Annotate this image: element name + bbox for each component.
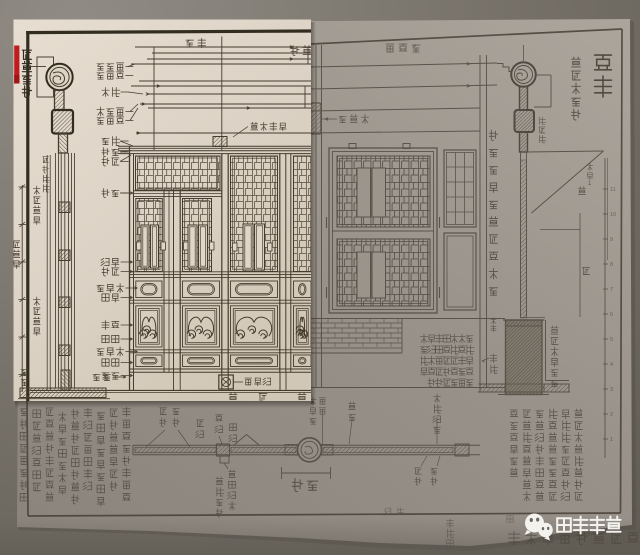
svg-text:3: 3 (610, 387, 613, 393)
svg-text:7: 7 (610, 287, 613, 293)
svg-text:8: 8 (610, 262, 613, 268)
svg-text:10: 10 (610, 212, 616, 218)
svg-text:2: 2 (610, 412, 613, 418)
svg-text:9: 9 (610, 237, 613, 243)
svg-text:6: 6 (610, 312, 613, 318)
svg-text:4: 4 (610, 362, 613, 368)
svg-text:5: 5 (610, 337, 613, 343)
svg-text:11: 11 (610, 187, 616, 193)
svg-text:1: 1 (610, 437, 613, 443)
